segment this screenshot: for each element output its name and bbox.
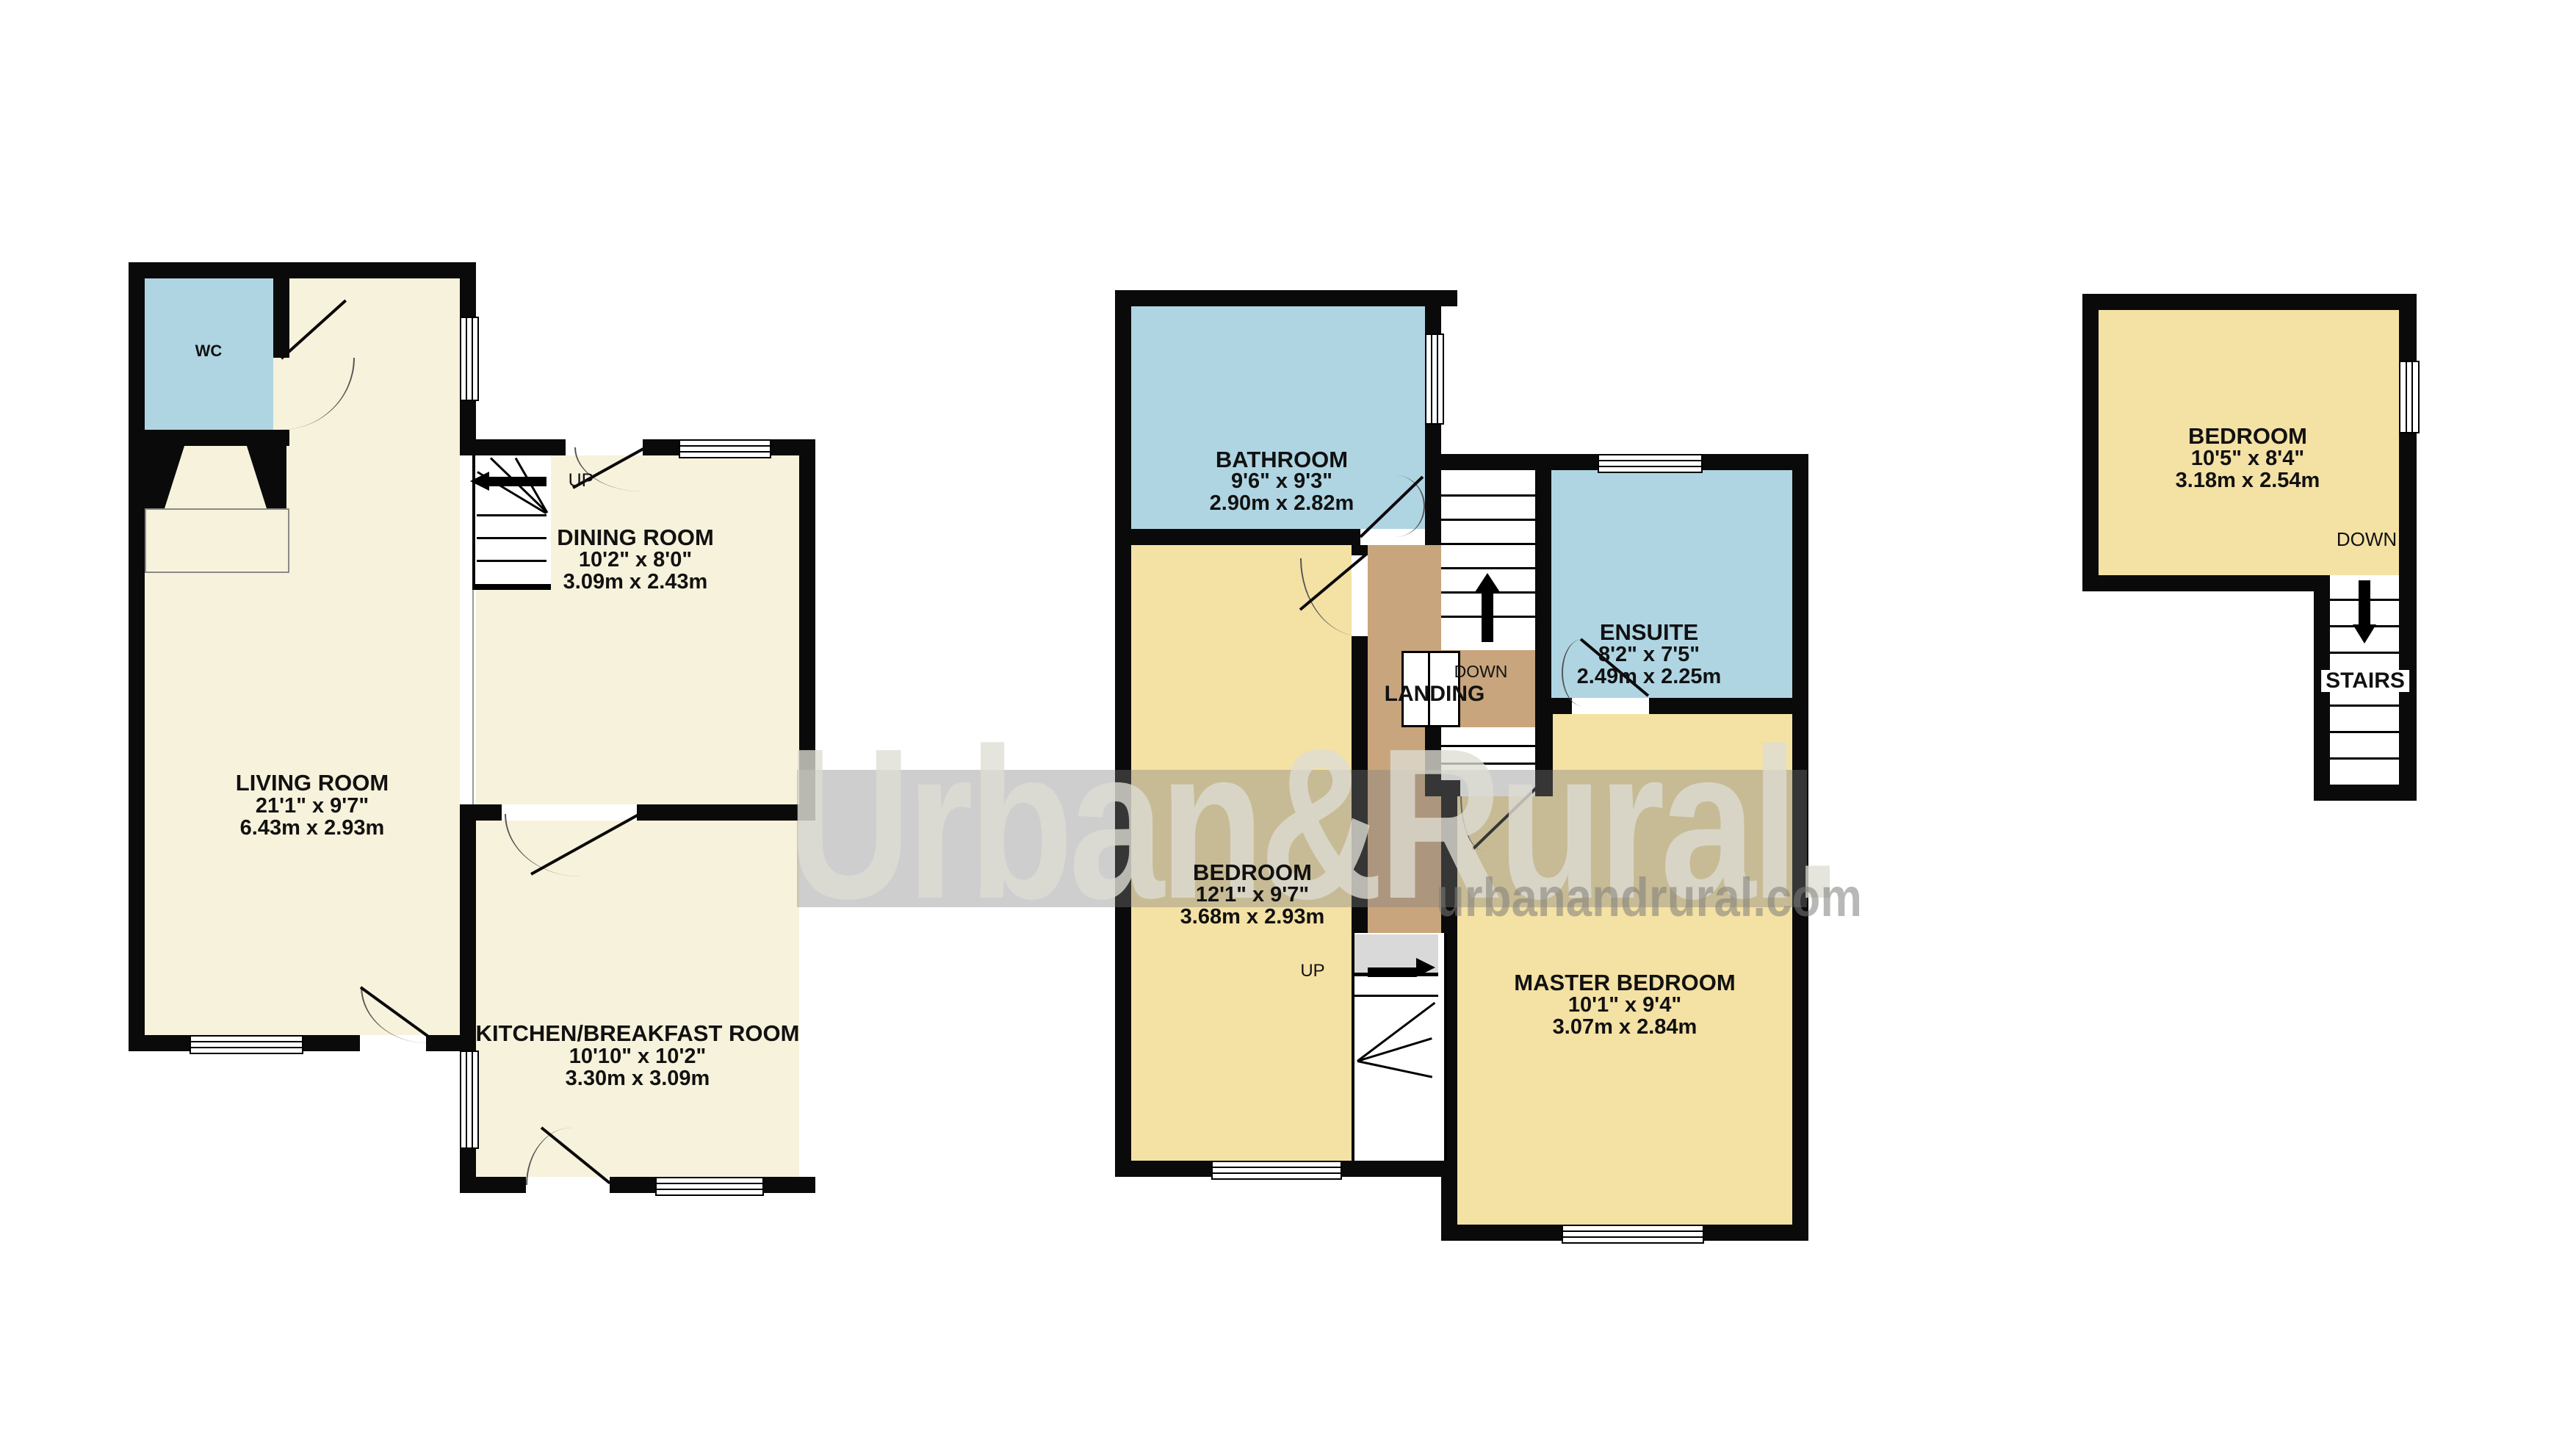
ensuite-window [1598, 454, 1703, 473]
dining-room-label: DINING ROOM [557, 526, 714, 549]
bedroom-window [1211, 1161, 1342, 1180]
wall [460, 1177, 526, 1193]
master-bedroom-label: MASTER BEDROOM [1514, 971, 1735, 994]
stairs-label: STAIRS [2321, 670, 2409, 692]
wall [2314, 785, 2417, 801]
ensuite-label: ENSUITE [1600, 621, 1698, 644]
wc-label: WC [195, 343, 223, 359]
wall [1441, 454, 1598, 470]
bedroom-label: BEDROOM [1193, 861, 1312, 884]
watermark-website: urbanandrural.com [1436, 871, 1862, 925]
kitchen-floor [476, 821, 799, 1177]
wall [426, 1035, 476, 1051]
stairs-down-arrow [2353, 624, 2376, 644]
bathroom-window [1425, 334, 1444, 425]
wall [2082, 575, 2330, 591]
ensuite-size-metric: 2.49m x 2.25m [1577, 666, 1722, 688]
fireplace-opening [145, 446, 286, 508]
wall [1115, 1161, 1211, 1177]
kitchen-size-metric: 3.30m x 3.09m [566, 1068, 710, 1089]
floorplan-canvas: WC LIVING ROOM 21'1" x 9'7" 6.43m x 2.93… [0, 0, 2576, 1456]
wall [1535, 470, 1551, 714]
stairs-down-arrow-shaft [2359, 580, 2370, 626]
kitchen-size-imperial: 10'10" x 10'2" [569, 1046, 706, 1067]
dining-window [679, 439, 771, 458]
wall [1425, 529, 1441, 545]
stairs-up-arrow-shaft [1368, 967, 1416, 977]
first-up-label: UP [1300, 962, 1324, 980]
kitchen-rear-window [655, 1177, 764, 1196]
wall [476, 804, 502, 821]
wall [129, 430, 289, 446]
stairs-up-arrow [470, 472, 489, 491]
wall [643, 439, 679, 455]
living-room-label: LIVING ROOM [236, 771, 389, 794]
bedroom-window [2399, 361, 2420, 433]
wall [1339, 1161, 1441, 1177]
wall [1701, 1225, 1808, 1241]
bathroom-size-imperial: 9'6" x 9'3" [1231, 471, 1332, 492]
bedroom-size-imperial: 12'1" x 9'7" [1196, 884, 1309, 906]
master-bedroom-size-imperial: 10'1" x 9'4" [1568, 995, 1681, 1016]
wall [1115, 290, 1457, 306]
living-room-size-imperial: 21'1" x 9'7" [256, 796, 369, 817]
first-down-label: DOWN [1454, 663, 1508, 680]
bathroom-size-metric: 2.90m x 2.82m [1210, 493, 1354, 514]
dining-room-size-imperial: 10'2" x 8'0" [579, 549, 692, 571]
dining-room-size-metric: 3.09m x 2.43m [563, 572, 708, 593]
wall [2082, 294, 2099, 591]
master-bedroom-size-metric: 3.07m x 2.84m [1553, 1017, 1698, 1038]
wall [460, 439, 566, 455]
stairs-up-arrow [1475, 573, 1500, 592]
second-down-label: DOWN [2337, 530, 2397, 549]
bathroom-label: BATHROOM [1216, 448, 1348, 471]
hall-window [460, 317, 479, 401]
bedroom-label: BEDROOM [2188, 425, 2307, 447]
ensuite-size-imperial: 8'2" x 7'5" [1598, 644, 1700, 666]
wall [2082, 294, 2417, 310]
wall [1115, 529, 1360, 545]
ground-up-label: UP [569, 472, 594, 490]
kitchen-label: KITCHEN/BREAKFAST ROOM [476, 1022, 800, 1045]
living-room-size-metric: 6.43m x 2.93m [240, 818, 385, 839]
wall [1441, 1225, 1562, 1241]
kitchen-side-window [460, 1050, 479, 1149]
bedroom-size-metric: 3.68m x 2.93m [1180, 907, 1325, 928]
stairs-up-arrow-shaft [1482, 591, 1493, 642]
wall [129, 262, 476, 278]
stairs-up-arrow [1416, 958, 1435, 977]
bedroom-size-metric: 3.18m x 2.54m [2176, 470, 2320, 491]
fireplace-hearth [145, 508, 289, 573]
hall-divider-line [472, 584, 474, 804]
bedroom-size-imperial: 10'5" x 8'4" [2191, 448, 2304, 469]
master-bedroom-window [1562, 1225, 1704, 1244]
wall [129, 262, 145, 1051]
wall [273, 278, 289, 358]
living-window [190, 1035, 303, 1054]
landing-label: LANDING [1385, 683, 1485, 705]
chimney-breast [145, 446, 286, 508]
stairs-up-arrow-shaft [488, 477, 546, 486]
